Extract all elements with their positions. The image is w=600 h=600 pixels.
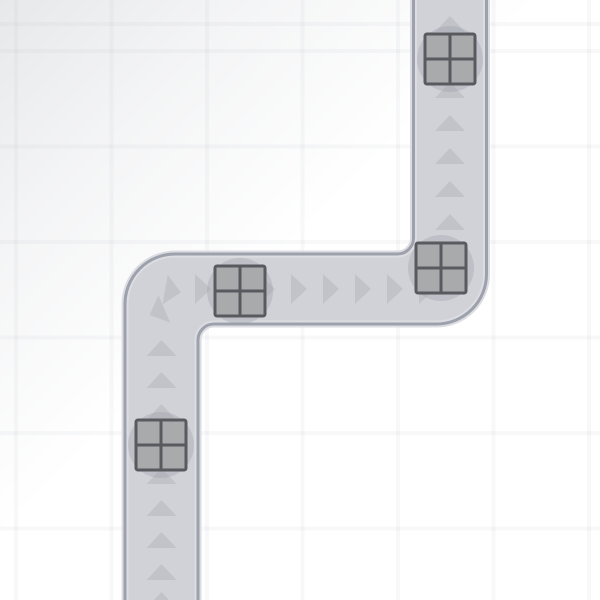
game-viewport[interactable] xyxy=(0,0,600,600)
crate[interactable] xyxy=(417,26,483,92)
crate[interactable] xyxy=(128,412,194,478)
crate[interactable] xyxy=(408,235,474,301)
crate[interactable] xyxy=(207,258,273,324)
game-canvas-svg xyxy=(0,0,600,600)
conveyor-road xyxy=(125,0,487,600)
